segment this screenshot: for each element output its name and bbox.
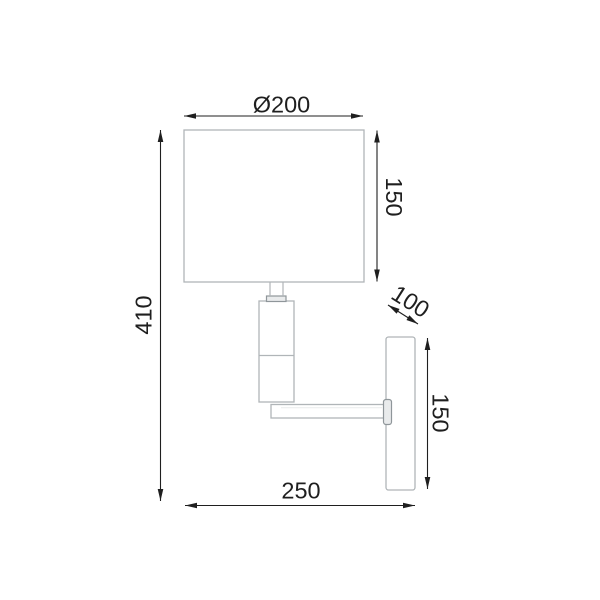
technical-drawing-canvas: Ø200 410 150 100 150 250 <box>0 0 600 600</box>
lamp-shade <box>184 130 364 282</box>
dim-shade-diameter: Ø200 <box>184 92 363 118</box>
wall-plate-flange <box>384 400 392 425</box>
dim-overall-width: 250 <box>185 478 415 506</box>
dim-label-plate-height: 150 <box>428 393 454 432</box>
dim-label-shade-height: 150 <box>381 177 407 216</box>
dim-shade-height: 150 <box>377 131 407 282</box>
dim-label-total-height: 410 <box>131 295 157 334</box>
lamp-body-cylinder <box>259 301 294 402</box>
lamp-arm <box>271 405 385 419</box>
wall-lamp-drawing: Ø200 410 150 100 150 250 <box>0 0 600 600</box>
lamp-neck <box>270 282 283 296</box>
dim-total-height: 410 <box>131 130 161 501</box>
socket-collar <box>267 296 287 302</box>
dim-label-overall-width: 250 <box>281 478 320 504</box>
dim-plate-height: 150 <box>428 338 454 489</box>
dim-plate-depth: 100 <box>387 280 434 324</box>
lamp-outline-group <box>184 130 415 490</box>
dim-label-shade-diameter: Ø200 <box>253 92 311 118</box>
dim-label-plate-depth: 100 <box>387 280 434 323</box>
